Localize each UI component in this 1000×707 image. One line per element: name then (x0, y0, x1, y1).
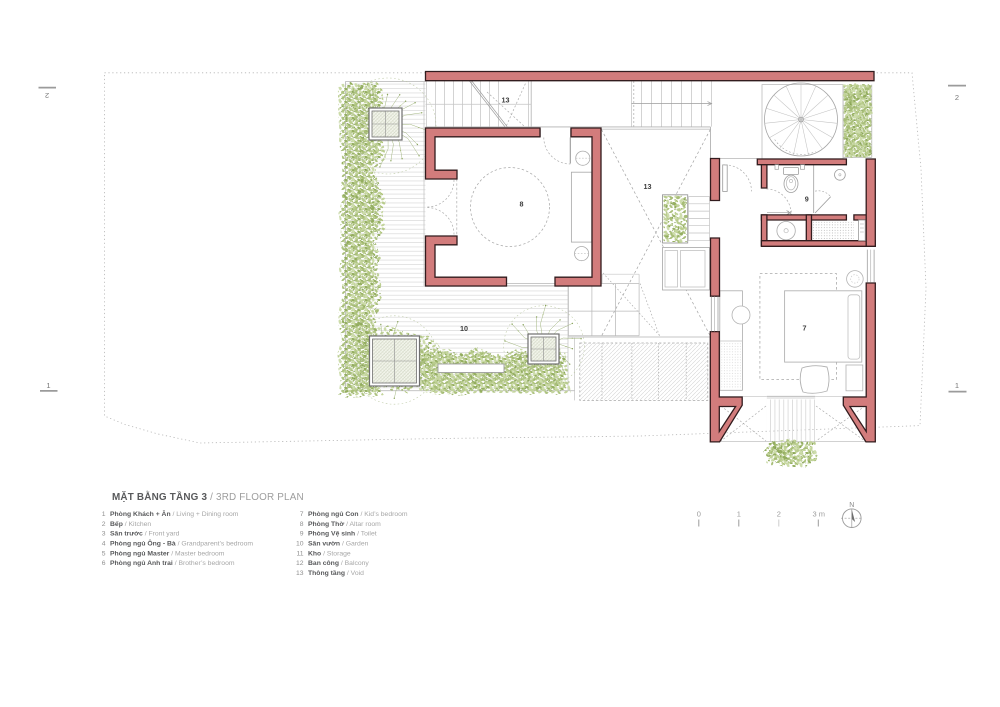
svg-text:Bếp / Kitchen: Bếp / Kitchen (110, 520, 151, 528)
svg-text:13: 13 (644, 182, 652, 191)
svg-text:Phòng ngủ Master / Master bedr: Phòng ngủ Master / Master bedroom (110, 550, 225, 557)
svg-text:Kho / Storage: Kho / Storage (308, 550, 351, 557)
svg-text:3: 3 (102, 531, 106, 538)
svg-text:N: N (849, 502, 854, 509)
svg-text:13: 13 (296, 570, 304, 577)
svg-text:4: 4 (102, 541, 106, 548)
svg-text:8: 8 (300, 521, 304, 528)
svg-text:11: 11 (296, 550, 303, 557)
svg-text:9: 9 (300, 531, 304, 538)
svg-text:10: 10 (460, 324, 468, 333)
svg-text:MẶT BẰNG TẦNG 3 / 3RD FLOOR PL: MẶT BẰNG TẦNG 3 / 3RD FLOOR PLAN (112, 492, 304, 503)
svg-text:13: 13 (502, 96, 510, 105)
svg-text:Sân vườn / Garden: Sân vườn / Garden (308, 541, 369, 548)
svg-text:Phòng Khách + Ăn / Living + Di: Phòng Khách + Ăn / Living + Dining room (110, 509, 239, 518)
svg-text:0: 0 (697, 510, 701, 519)
svg-text:5: 5 (102, 550, 106, 557)
svg-text:1: 1 (737, 510, 741, 519)
svg-text:1: 1 (46, 381, 50, 390)
svg-text:Phòng Vệ sinh / Toilet: Phòng Vệ sinh / Toilet (308, 531, 377, 538)
svg-text:8: 8 (520, 200, 524, 209)
svg-text:3 m: 3 m (813, 510, 826, 519)
svg-text:1: 1 (955, 381, 959, 390)
svg-text:Phòng ngủ Anh trai / Brother’s: Phòng ngủ Anh trai / Brother’s bedroom (110, 560, 235, 567)
svg-text:10: 10 (296, 541, 304, 548)
svg-text:1: 1 (102, 511, 106, 518)
svg-text:2: 2 (955, 93, 959, 102)
svg-text:Sân trước / Front yard: Sân trước / Front yard (110, 531, 180, 538)
svg-text:7: 7 (300, 511, 304, 518)
svg-text:2: 2 (777, 510, 781, 519)
svg-text:Phòng ngủ Con / Kid’s bedroom: Phòng ngủ Con / Kid’s bedroom (308, 511, 408, 518)
svg-text:9: 9 (805, 194, 809, 203)
svg-text:2: 2 (45, 91, 49, 100)
svg-text:Phòng ngủ Ông - Bà / Grandpare: Phòng ngủ Ông - Bà / Grandparent’s bedro… (110, 539, 253, 548)
svg-text:Ban công / Balcony: Ban công / Balcony (308, 560, 369, 567)
svg-text:7: 7 (803, 324, 807, 333)
svg-text:Phòng Thờ / Altar room: Phòng Thờ / Altar room (308, 521, 381, 528)
svg-text:6: 6 (102, 560, 106, 567)
svg-text:12: 12 (296, 560, 304, 567)
svg-text:Thông tầng / Void: Thông tầng / Void (308, 568, 364, 577)
svg-text:2: 2 (102, 521, 106, 528)
